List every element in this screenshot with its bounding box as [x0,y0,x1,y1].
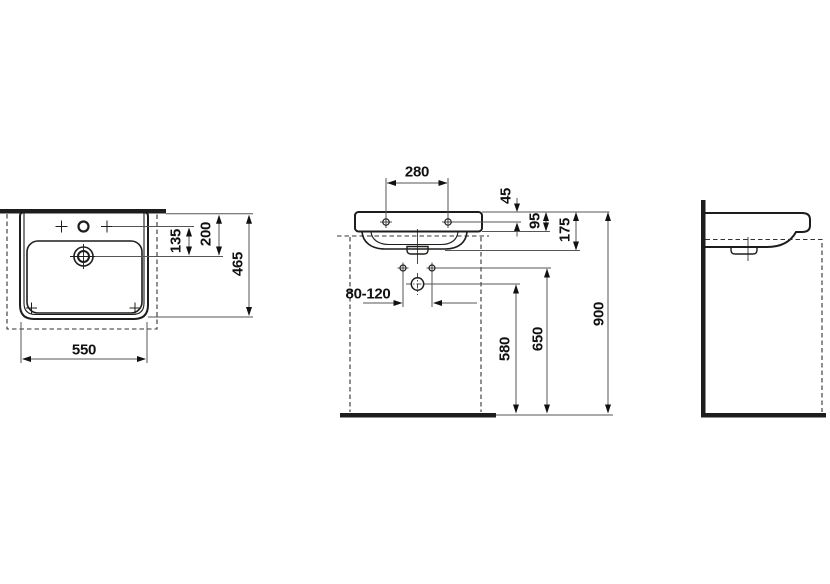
floor-line-side [701,413,826,418]
dim-label-waste-outlet-height: 580 [498,337,513,361]
tap-hole [79,222,89,232]
dim-label-ceramic-height: 175 [558,218,573,242]
basin-side-profile [706,213,811,247]
dim-label-basin-depth: 465 [231,252,246,276]
side-hidden-dashed [706,240,823,413]
basin-rim-inner-line [24,213,144,315]
top-view-arrowheads [22,215,252,362]
bowl-underside-inner [371,232,458,245]
below-basin-dashed [350,237,481,412]
top-view-leader-lines [21,214,253,363]
bowl-corner-marks [26,303,141,314]
dim-label-tap-to-drain: 135 [169,229,184,253]
side-view [701,200,826,418]
technical-drawing-canvas: 550 135 200 465 280 80-120 45 95 175 580… [0,0,830,584]
dim-label-supply-spacing: 80-120 [346,287,391,302]
floor-line-front [340,413,496,418]
dim-label-supply-height: 650 [531,327,546,351]
top-view [0,209,253,363]
supply-connection-points [398,263,438,274]
fixing-holes [380,216,454,228]
wall-line-side [701,200,706,417]
drain-center-marks [70,244,97,269]
waste-fitting-side [731,247,757,254]
dim-label-rim-edge-height: 95 [528,213,543,229]
dim-label-rim-to-fixing-holes: 45 [499,188,514,204]
front-view-arrowheads [387,180,611,414]
dim-label-rim-height: 900 [592,302,607,326]
technical-drawing-linework [0,0,830,584]
dim-label-drain-to-wall: 200 [199,222,214,246]
dim-label-basin-width: 550 [72,343,96,358]
top-view-dimension-lines [23,216,249,359]
dim-label-fixing-hole-spacing: 280 [405,165,429,180]
